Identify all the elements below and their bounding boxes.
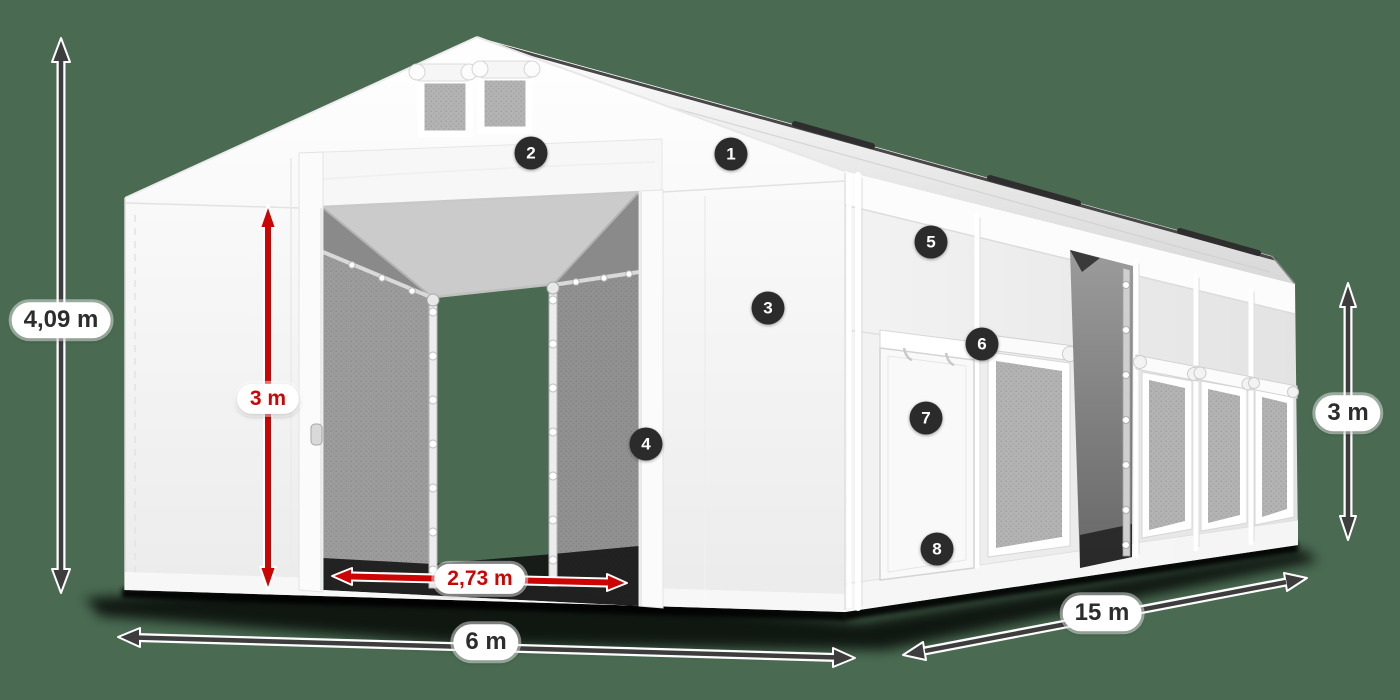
front-entrance-interior [323,192,639,606]
callout-badge-5: 5 [915,226,948,259]
callout-badge-7: 7 [910,402,943,435]
callout-badge-1: 1 [715,138,748,171]
callout-badge-8: 8 [921,533,954,566]
entrance-right-jamb [639,190,663,608]
tent-illustration [0,0,1400,700]
tent-dimension-diagram: 4,09 m 3 m 2,73 m 6 m 15 m 3 m 1 2 3 4 5… [0,0,1400,700]
dimension-label-length: 15 m [1063,595,1142,631]
dimension-label-width: 6 m [453,624,518,660]
dimension-label-side-height: 3 m [1315,395,1380,431]
callout-badge-4: 4 [630,428,663,461]
side-entrance-opening [1070,250,1133,568]
dimension-label-entrance-height: 3 m [237,384,299,414]
callout-badge-3: 3 [752,292,785,325]
dimension-label-total-height: 4,09 m [12,302,111,338]
side-window-3 [1194,366,1254,531]
door-handle [311,424,322,445]
entrance-left-jamb [299,152,323,592]
side-window-4 [1249,377,1299,525]
dimension-label-entrance-width: 2,73 m [434,564,525,594]
gable-vent-right [472,61,540,130]
side-window-1 [979,334,1078,557]
tent-side-wall [845,171,1299,612]
side-window-2 [1134,355,1201,538]
gable-vent-left [409,64,477,134]
callout-badge-2: 2 [515,137,548,170]
callout-badge-6: 6 [966,328,999,361]
